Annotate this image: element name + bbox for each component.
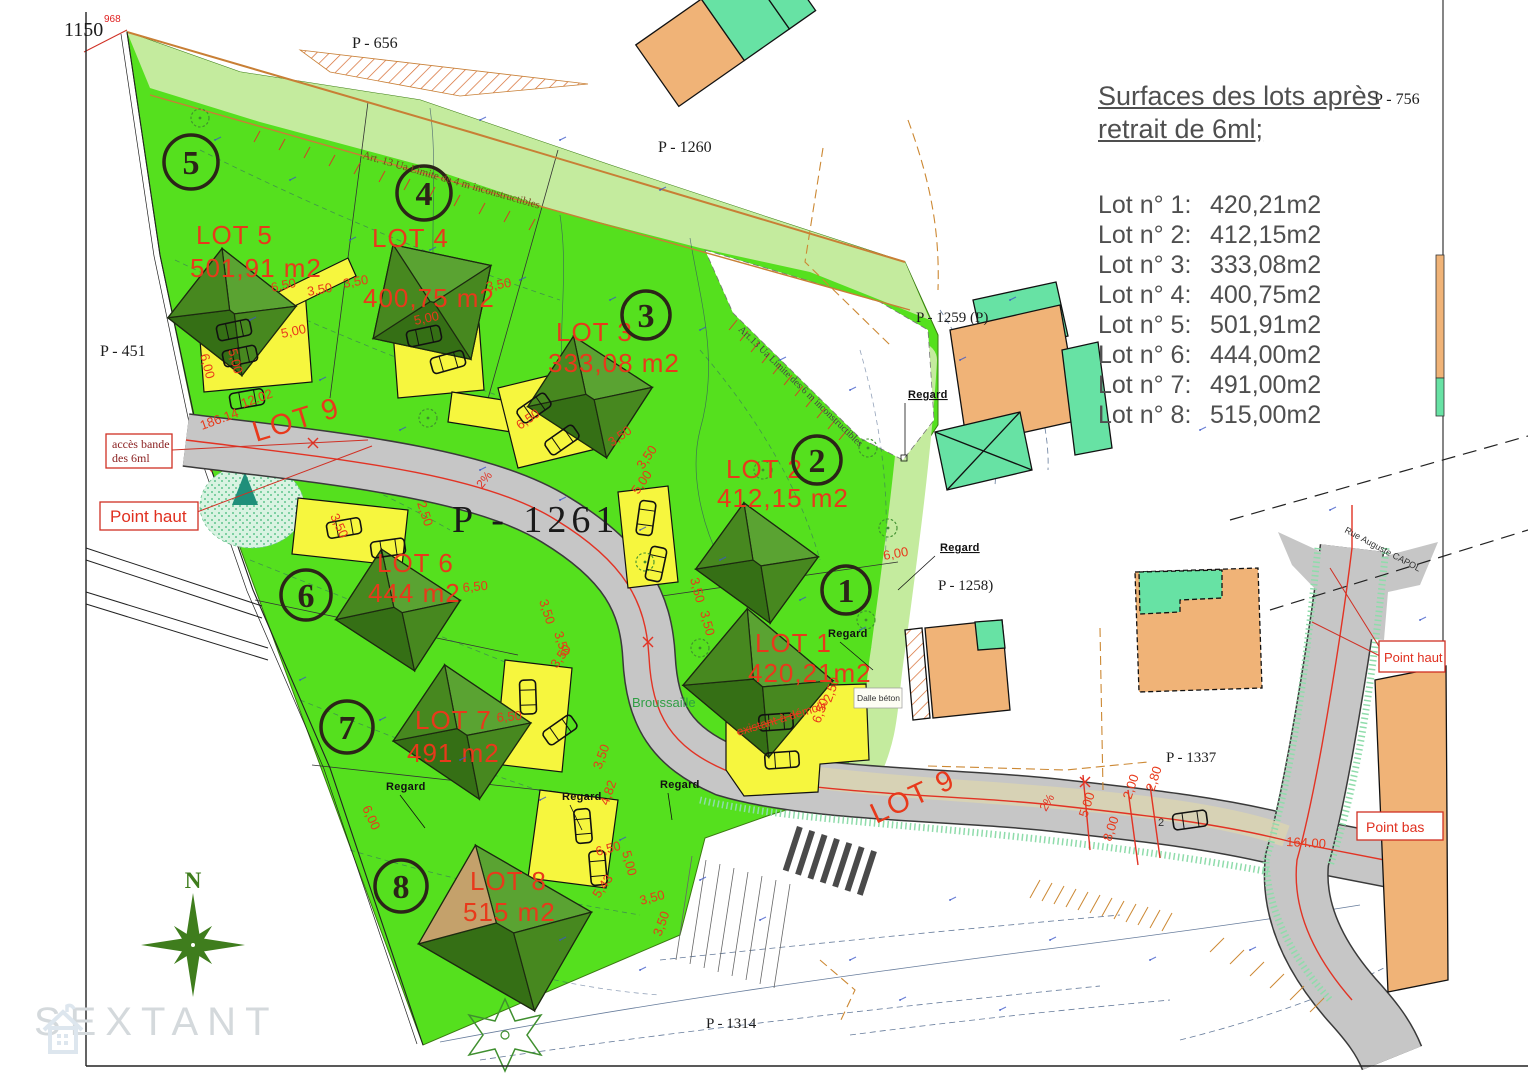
lot3-area: 333,08 m2 [548, 348, 680, 378]
legend-row-label: Lot n° 7: [1098, 370, 1210, 400]
lot2-name: LOT 2 [726, 454, 803, 484]
path-lines-west [86, 548, 268, 660]
point-bas-label: Point bas [1366, 819, 1424, 835]
point-haut-right-label: Point haut [1384, 650, 1443, 665]
parcel-p1258: P - 1258) [938, 578, 993, 594]
lot2-area: 412,15 m2 [717, 483, 849, 513]
parking-bars [783, 826, 877, 896]
circle-num-8: 8 [393, 869, 410, 906]
circle-num-7: 7 [339, 710, 356, 747]
legend-title-line1: Surfaces des lots après [1098, 80, 1380, 113]
regard-label: Regard [940, 542, 980, 554]
legend-row-value: 515,00m2 [1210, 400, 1321, 430]
regard-label: Regard [562, 791, 602, 803]
circle-num-5: 5 [183, 145, 200, 182]
sheet-coord-label: 1150 [64, 19, 103, 41]
regard-label: Regard [908, 389, 948, 401]
circle-num-1: 1 [838, 573, 855, 610]
legend-row: Lot n° 5:501,91m2 [1098, 310, 1380, 340]
dim: 2,80 [1143, 764, 1165, 793]
legend-title-line2: retrait de 6ml; [1098, 113, 1380, 146]
acces-box-line1: accès bande [112, 437, 170, 451]
legend-row: Lot n° 8:515,00m2 [1098, 400, 1380, 430]
lot1-area: 420,21m2 [748, 658, 872, 688]
building-p1337 [1135, 568, 1262, 692]
circle-num-4: 4 [416, 176, 433, 213]
legend-row-label: Lot n° 5: [1098, 310, 1210, 340]
legend-row: Lot n° 6:444,00m2 [1098, 340, 1380, 370]
legend-row-label: Lot n° 1: [1098, 190, 1210, 220]
legend-row-label: Lot n° 8: [1098, 400, 1210, 430]
building-near-lot1 [905, 620, 1010, 720]
benchmark-label: 968 [104, 14, 121, 25]
circle-num-3: 3 [638, 298, 655, 335]
legend-row: Lot n° 3:333,08m2 [1098, 250, 1380, 280]
legend-rows: Lot n° 1:420,21m2 Lot n° 2:412,15m2 Lot … [1098, 190, 1380, 430]
north-compass-icon [141, 893, 245, 997]
legend-row-value: 333,08m2 [1210, 250, 1321, 280]
parcel-p1261: P - 1261 [452, 499, 619, 541]
parcel-p1260: P - 1260 [658, 139, 712, 156]
lot4-area: 400,75 m2 [363, 283, 495, 313]
regard-label: Regard [828, 628, 868, 640]
broussaille-label: Broussaille [632, 695, 696, 710]
regard-label: Regard [386, 781, 426, 793]
north-label: N [185, 868, 202, 893]
legend-row: Lot n° 7:491,00m2 [1098, 370, 1380, 400]
legend-row-value: 501,91m2 [1210, 310, 1321, 340]
parcel-p1259: P - 1259 (P) [916, 310, 988, 326]
dalle-beton-label: Dalle béton [857, 693, 900, 703]
legend-row-label: Lot n° 6: [1098, 340, 1210, 370]
lot1-name: LOT 1 [755, 628, 832, 658]
lot8-area: 515 m2 [463, 897, 556, 927]
circle-num-2: 2 [809, 443, 826, 480]
circle-num-6: 6 [298, 578, 315, 615]
point-haut-left-label: Point haut [110, 507, 187, 526]
legend-row-label: Lot n° 2: [1098, 220, 1210, 250]
legend-row: Lot n° 1:420,21m2 [1098, 190, 1380, 220]
legend-row-label: Lot n° 3: [1098, 250, 1210, 280]
legend-row-value: 420,21m2 [1210, 190, 1321, 220]
lot8-name: LOT 8 [470, 866, 547, 896]
site-plan: accès bande des 6ml Point haut Point hau… [0, 0, 1528, 1080]
parcel-p1337: P - 1337 [1166, 750, 1217, 766]
legend-row-value: 412,15m2 [1210, 220, 1321, 250]
legend-row-value: 491,00m2 [1210, 370, 1321, 400]
lot4-name: LOT 4 [372, 223, 449, 253]
acces-box-line2: des 6ml [112, 451, 150, 465]
road-trumpet [1278, 532, 1438, 640]
lot5-name: LOT 5 [196, 220, 273, 250]
legend-row: Lot n° 4:400,75m2 [1098, 280, 1380, 310]
watermark: SEXTANT [34, 1000, 279, 1045]
dim: 164.00 [1286, 834, 1326, 851]
legend-row-value: 400,75m2 [1210, 280, 1321, 310]
regard-label: Regard [660, 779, 700, 791]
dim: 6,50 [462, 578, 489, 595]
parcel-p656: P - 656 [352, 35, 398, 52]
building-top [632, 0, 815, 106]
parcel-p756: P - 756 [1374, 91, 1420, 108]
parcel-p451: P - 451 [100, 343, 146, 360]
parcel-p1314: P - 1314 [706, 1016, 757, 1032]
lot6-name: LOT 6 [377, 548, 454, 578]
lot6-area: 444 m2 [368, 578, 461, 608]
parking-space-number: 2 [1158, 817, 1164, 829]
legend-row-value: 444,00m2 [1210, 340, 1321, 370]
dim: 6,50 [496, 708, 523, 725]
legend: Surfaces des lots après retrait de 6ml; … [1098, 80, 1380, 430]
lot7-area: 491 m2 [407, 738, 500, 768]
lot7-name: LOT 7 [415, 705, 492, 735]
sextant-logo-icon [34, 1000, 92, 1058]
lot5-area: 501,91 m2 [190, 253, 322, 283]
legend-row-label: Lot n° 4: [1098, 280, 1210, 310]
legend-row: Lot n° 2:412,15m2 [1098, 220, 1380, 250]
